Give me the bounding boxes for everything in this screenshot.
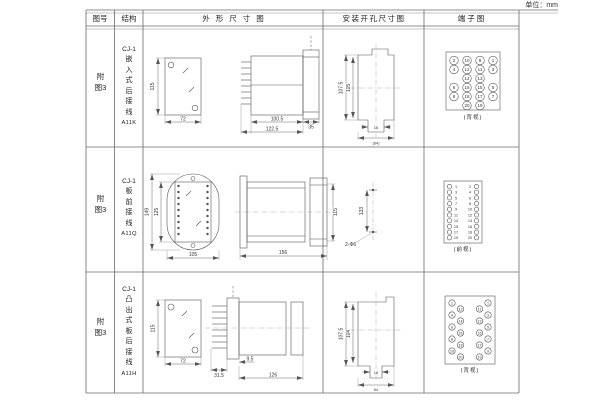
terminal-number: 19 (477, 103, 483, 108)
dim-front-height: 115 (151, 324, 157, 332)
model-label: CJ-1 (122, 286, 136, 293)
terminal-number: 11 (478, 67, 483, 72)
terminal-number: 12 (459, 307, 463, 311)
terminal-caption: (背视) (461, 366, 480, 374)
table-and-diagrams: 单位：mm 图号 结构 外形尺寸图 安装开孔尺寸图 端子图 115 (0, 0, 600, 400)
dim-depth: 156 (279, 250, 288, 256)
dim-front-width: 72 (180, 117, 186, 123)
terminal-circle (474, 201, 478, 205)
terminal-number: 13 (454, 219, 458, 223)
terminal-circle (447, 230, 451, 234)
terminal-grid-right: 111133155177199 (476, 300, 491, 360)
structure-label: 板前接线 (125, 187, 134, 229)
terminal-number: 3 (455, 191, 457, 195)
dim-mount-slot-width: 16 (374, 125, 379, 130)
dim-plate-depth: 9.5 (247, 357, 254, 363)
dim-mount-outer-height: 107.5 (339, 82, 345, 95)
structure-label: 嵌入式后接线 (125, 55, 134, 118)
row3-mounting-diagram: 107.5 104 16 64 (339, 292, 403, 392)
terminal-number: 3 (492, 67, 495, 72)
dim-case-depth: 100.5 (271, 117, 284, 123)
terminal-number: 16 (459, 331, 463, 335)
dim-mount-opening-width: (64) (372, 141, 380, 146)
terminal-circle (447, 207, 451, 211)
terminal-pins (212, 306, 227, 348)
terminal-caption: (前视) (454, 245, 473, 253)
row1-outline-diagram: 115 72 100.5 35 122.5 (150, 36, 319, 134)
row3-terminal-diagram: 2124146168181020 111133155177199 (背视) (445, 296, 495, 374)
terminal-number: 5 (492, 85, 495, 90)
code-label: A11K (122, 120, 137, 126)
dim-rear-depth: 35 (308, 125, 314, 131)
dim-mount-slot-width: 16 (374, 370, 379, 375)
row1-terminal-diagram: 2109141211314136161558181772019 (背视) (446, 52, 500, 121)
terminal-number: 7 (455, 202, 457, 206)
structure-cell-row3: CJ-1 凸出式板后接线 A11H (116, 286, 142, 377)
dim-total-depth: 122.5 (266, 127, 279, 133)
terminal-number: 15 (454, 225, 458, 229)
terminal-number: 18 (459, 343, 463, 347)
terminal-number: 3 (487, 313, 489, 317)
dim-hole-spacing: 133 (359, 207, 365, 216)
dim-front-width: 72 (180, 359, 186, 365)
terminal-circle (474, 190, 478, 194)
terminal-circle (447, 236, 451, 240)
terminal-number: 1 (487, 301, 489, 305)
terminal-number: 15 (478, 331, 482, 335)
terminal-number: 7 (487, 337, 489, 341)
dim-pin-depth: 31.5 (214, 373, 224, 379)
col-header-terminal: 端子图 (458, 13, 487, 23)
terminal-circle (474, 230, 478, 234)
terminal-number: 1 (455, 185, 457, 189)
dim-body-depth: 126 (269, 373, 278, 379)
col-header-outline: 外形尺寸图 (202, 13, 270, 23)
terminal-number: 18 (468, 230, 472, 234)
terminal-number: 10 (450, 349, 454, 353)
terminal-number: 20 (464, 103, 470, 108)
table-grid (86, 10, 558, 393)
terminal-circle (474, 196, 478, 200)
col-header-figure: 图号 (93, 14, 108, 23)
terminal-number: 6 (453, 85, 456, 90)
terminal-number: 14 (468, 219, 472, 223)
dim-mount-inner-height: 105 (346, 84, 352, 93)
terminal-number: 20 (459, 355, 463, 359)
terminal-number: 8 (453, 94, 456, 99)
terminal-number: 6 (469, 196, 471, 200)
terminal-number: 7 (492, 94, 495, 99)
terminal-number: 5 (487, 325, 489, 329)
dim-mount-outer-height: 107.5 (339, 328, 345, 341)
terminal-number: 16 (464, 85, 470, 90)
figure-cell-row2: 附图3 (94, 194, 108, 215)
terminal-number: 20 (468, 236, 472, 240)
terminal-pins (241, 62, 251, 104)
figure-cell-row3: 附图3 (94, 317, 108, 338)
row2-terminal-diagram: 1234567891011121314151617181920 (前视) (444, 181, 482, 253)
structure-label: 凸出式板后接线 (125, 295, 134, 369)
relay-dimension-sheet: 单位：mm 图号 结构 外形尺寸图 安装开孔尺寸图 端子图 115 (0, 0, 600, 400)
terminal-grid: 2109141211314136161558181772019 (450, 56, 498, 110)
terminal-number: 16 (468, 225, 472, 229)
dim-mount-opening-width: 64 (374, 387, 379, 392)
terminal-grid: 1234567891011121314151617181920 (447, 184, 478, 240)
terminal-number: 13 (478, 319, 482, 323)
terminal-number: 12 (468, 213, 472, 217)
terminal-number: 10 (464, 58, 470, 63)
figure-cell-row1: 附图3 (94, 72, 108, 93)
hole-callout: 2-Φ6 (345, 242, 356, 248)
terminal-number: 9 (479, 58, 482, 63)
terminal-number: 2 (469, 185, 471, 189)
code-label: A11H (121, 371, 136, 377)
terminal-number: 9 (455, 208, 457, 212)
terminal-number: 17 (478, 343, 482, 347)
row1-mounting-diagram: 107.5 105 16 (64) (339, 44, 402, 146)
terminal-circle (474, 219, 478, 223)
terminal-number: 1 (492, 58, 495, 63)
terminal-number: 14 (459, 319, 463, 323)
dim-flange-height: 149 (145, 208, 151, 217)
terminal-circle (447, 213, 451, 217)
terminal-number: 8 (451, 337, 453, 341)
terminal-number: 11 (454, 213, 458, 217)
terminal-circle (447, 201, 451, 205)
terminal-number: 19 (454, 236, 458, 240)
dim-side-height: 115 (333, 208, 339, 216)
terminal-number: 15 (477, 85, 483, 90)
terminal-circle (447, 190, 451, 194)
terminal-circle (474, 184, 478, 188)
dim-front-height: 115 (150, 82, 156, 90)
terminal-number: 19 (478, 355, 482, 359)
terminal-circle (474, 207, 478, 211)
terminal-number: 14 (464, 76, 470, 81)
terminal-number: 4 (453, 67, 456, 72)
terminal-number: 13 (477, 76, 483, 81)
model-label: CJ-1 (122, 46, 136, 53)
terminal-circle (447, 184, 451, 188)
unit-label: 单位：mm (525, 0, 558, 9)
terminal-circle (474, 236, 478, 240)
model-label: CJ-1 (122, 178, 136, 185)
terminal-number: 4 (451, 313, 453, 317)
structure-cell-row1: CJ-1 嵌入式后接线 A11K (116, 46, 142, 126)
dim-body-height: 125 (154, 208, 160, 217)
code-label: A11Q (121, 231, 137, 237)
terminal-number: 2 (451, 301, 453, 305)
terminal-circle (447, 219, 451, 223)
terminal-circle (447, 196, 451, 200)
dim-mount-inner-height: 104 (346, 330, 352, 339)
terminal-number: 12 (464, 67, 470, 72)
terminal-number: 18 (464, 94, 470, 99)
structure-cell-row2: CJ-1 板前接线 A11Q (116, 178, 142, 237)
row3-outline-diagram: 115 72 9.5 31.5 126 (151, 286, 311, 380)
row2-mounting-diagram: 133 2-Φ6 (345, 182, 377, 248)
terminal-number: 17 (477, 94, 483, 99)
terminal-number: 4 (469, 191, 471, 195)
dim-front-width: 105 (189, 252, 198, 258)
terminal-grid-left: 2124146168181020 (449, 300, 464, 360)
terminal-number: 6 (451, 325, 453, 329)
terminal-caption: (背视) (464, 113, 483, 121)
terminal-number: 5 (455, 196, 457, 200)
terminal-number: 2 (453, 58, 456, 63)
terminal-number: 17 (454, 230, 458, 234)
terminal-number: 9 (487, 349, 489, 353)
terminal-number: 8 (469, 202, 471, 206)
col-header-mounting: 安装开孔尺寸图 (343, 13, 406, 23)
row2-outline-diagram: 149 125 105 156 115 (145, 174, 340, 260)
table-header: 图号 结构 外形尺寸图 安装开孔尺寸图 端子图 (93, 13, 487, 23)
terminal-circle (474, 224, 478, 228)
col-header-structure: 结构 (122, 13, 137, 23)
terminal-circle (474, 213, 478, 217)
terminal-number: 10 (468, 208, 472, 212)
terminal-number: 11 (478, 307, 482, 311)
terminal-circle (447, 224, 451, 228)
